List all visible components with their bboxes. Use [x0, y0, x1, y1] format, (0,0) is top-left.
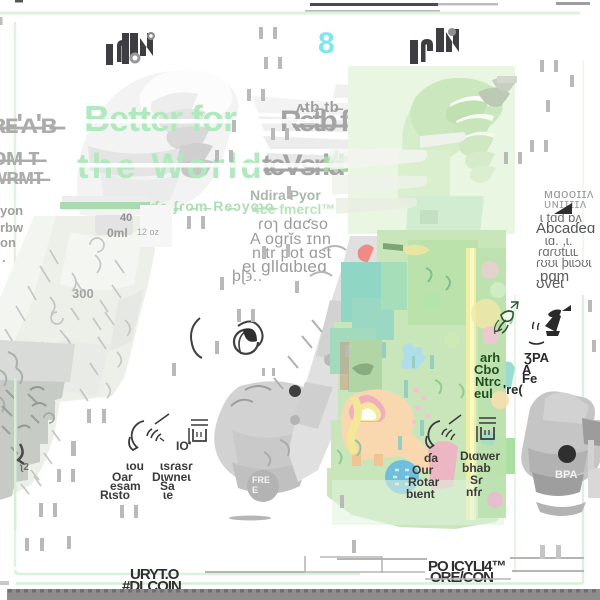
svg-text:ʊveɩ: ʊveɩ: [536, 275, 564, 292]
svg-text:on: on: [0, 235, 16, 250]
svg-text:E: E: [252, 485, 258, 495]
svg-text:ORE/CON: ORE/CON: [430, 569, 493, 586]
svg-text:yon: yon: [0, 203, 23, 218]
svg-text:ɩe: ɩe: [163, 488, 173, 502]
svg-text:.: .: [2, 250, 6, 265]
svg-text:FRE: FRE: [252, 475, 270, 485]
svg-text:ʅ2: ʅ2: [19, 462, 29, 473]
svg-text:'re(: 're(: [503, 382, 523, 397]
svg-text:bɩent: bɩent: [406, 487, 435, 501]
svg-text:eul: eul: [474, 386, 493, 401]
svg-text:40: 40: [120, 212, 132, 224]
svg-text:Rɩsto: Rɩsto: [100, 488, 130, 502]
svg-text:BPA: BPA: [555, 469, 577, 481]
svg-text:Better for: Better for: [84, 98, 237, 139]
svg-text:8: 8: [318, 27, 335, 60]
svg-text:4ce fmercl™: 4ce fmercl™: [252, 201, 335, 217]
svg-text:0ml: 0ml: [107, 226, 128, 240]
svg-text:IO': IO': [176, 439, 192, 453]
svg-text:300: 300: [72, 286, 94, 301]
svg-text:12 oz: 12 oz: [137, 227, 160, 237]
svg-text:nfɾ: nfɾ: [466, 485, 482, 499]
svg-text:rbw: rbw: [0, 220, 24, 235]
svg-text:Fe: Fe: [522, 371, 537, 386]
svg-text:ʌ̶tb̶ tb̶: ʌ̶tb̶ tb̶: [296, 99, 344, 116]
svg-text:ϸɭ϶..: ϸɭ϶..: [232, 268, 262, 285]
